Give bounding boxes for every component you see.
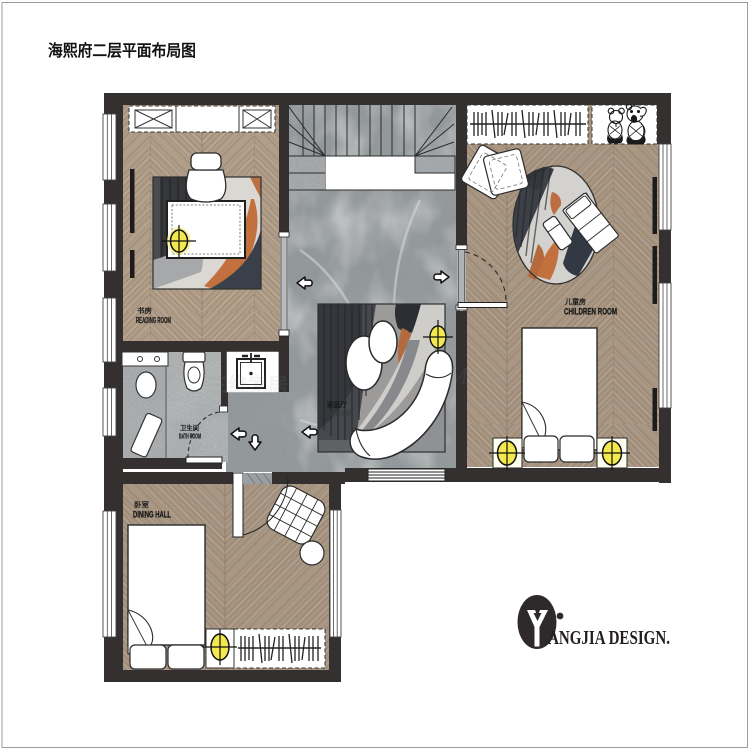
svg-text:卧室: 卧室 (134, 500, 149, 509)
svg-text:Master: Master (447, 364, 517, 390)
svg-text:ANGJIA DESIGN.: ANGJIA DESIGN. (548, 627, 670, 649)
svg-text:CHILDREN ROOM: CHILDREN ROOM (564, 307, 617, 318)
svg-text:家庭厅: 家庭厅 (327, 400, 347, 409)
svg-text:三维家居: 三维家居 (208, 373, 288, 397)
svg-text:书房: 书房 (137, 306, 152, 315)
svg-text:BATH ROOM: BATH ROOM (179, 432, 201, 441)
svg-text:DINING ROOM: DINING ROOM (327, 411, 353, 418)
svg-text:READING ROOM: READING ROOM (136, 315, 171, 325)
svg-text:儿童房: 儿童房 (564, 297, 586, 306)
svg-text:海熙府二层平面布局图: 海熙府二层平面布局图 (48, 41, 196, 60)
svg-text:DINING HALL: DINING HALL (133, 510, 171, 520)
